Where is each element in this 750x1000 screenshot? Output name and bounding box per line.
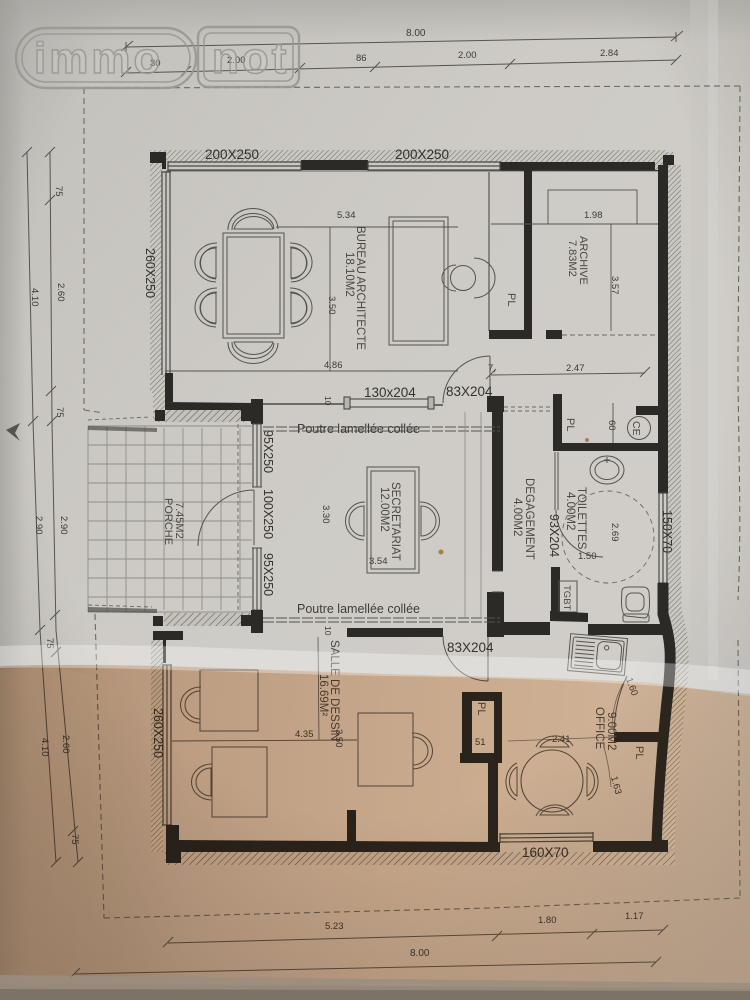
svg-text:7,: 7, <box>488 363 496 374</box>
svg-text:1.98: 1.98 <box>584 210 603 221</box>
svg-text:2.90: 2.90 <box>58 516 69 535</box>
svg-text:2.84: 2.84 <box>600 48 619 59</box>
svg-text:2.90: 2.90 <box>33 516 44 535</box>
svg-text:8.00: 8.00 <box>406 28 426 39</box>
svg-text:10: 10 <box>323 626 333 636</box>
svg-text:3.57: 3.57 <box>609 276 620 295</box>
svg-text:immo: immo <box>34 34 163 83</box>
svg-text:86: 86 <box>356 53 367 64</box>
svg-text:4.10: 4.10 <box>29 288 40 307</box>
svg-text:83X204: 83X204 <box>446 384 493 399</box>
svg-text:60: 60 <box>606 420 617 431</box>
svg-text:5.34: 5.34 <box>337 210 356 221</box>
svg-text:200X250: 200X250 <box>395 147 449 162</box>
svg-text:DEGAGEMENT: DEGAGEMENT <box>523 478 535 560</box>
svg-text:150X70: 150X70 <box>660 510 674 553</box>
svg-text:100X250: 100X250 <box>261 489 275 539</box>
svg-text:PORCHE: PORCHE <box>162 498 174 545</box>
svg-text:4.86: 4.86 <box>324 360 343 371</box>
svg-text:200X250: 200X250 <box>205 147 259 162</box>
svg-text:3.54: 3.54 <box>369 556 388 567</box>
svg-text:CE: CE <box>630 421 642 436</box>
svg-text:75: 75 <box>54 407 65 418</box>
svg-text:4.00M2: 4.00M2 <box>511 498 523 536</box>
svg-text:2.00: 2.00 <box>458 50 477 61</box>
svg-text:260X250: 260X250 <box>143 248 157 298</box>
svg-text:2.69: 2.69 <box>609 523 620 542</box>
svg-text:18.10M2: 18.10M2 <box>343 252 355 297</box>
svg-text:75: 75 <box>53 186 64 197</box>
svg-text:3.30: 3.30 <box>320 505 331 524</box>
svg-text:not: not <box>212 34 289 83</box>
svg-text:TGBT: TGBT <box>561 585 572 611</box>
svg-text:1.50: 1.50 <box>578 551 597 562</box>
svg-text:12.00M2: 12.00M2 <box>378 487 390 532</box>
svg-text:PL: PL <box>564 418 576 431</box>
svg-text:Poutre lamellée collée: Poutre lamellée collée <box>297 422 420 436</box>
svg-text:Poutre lamellée collée: Poutre lamellée collée <box>297 602 420 616</box>
svg-text:10: 10 <box>323 396 333 406</box>
svg-text:95X250: 95X250 <box>261 430 275 473</box>
svg-text:2.60: 2.60 <box>55 283 66 302</box>
svg-text:2.47: 2.47 <box>566 363 585 374</box>
svg-text:3.50: 3.50 <box>326 296 337 315</box>
svg-text:7.83M2: 7.83M2 <box>566 240 578 277</box>
svg-text:PL: PL <box>505 293 517 306</box>
svg-text:83X204: 83X204 <box>447 640 494 655</box>
svg-text:7.45M2: 7.45M2 <box>173 502 185 539</box>
svg-text:130x204: 130x204 <box>364 385 416 400</box>
svg-text:95X250: 95X250 <box>261 553 275 596</box>
svg-text:93X204: 93X204 <box>547 514 561 557</box>
